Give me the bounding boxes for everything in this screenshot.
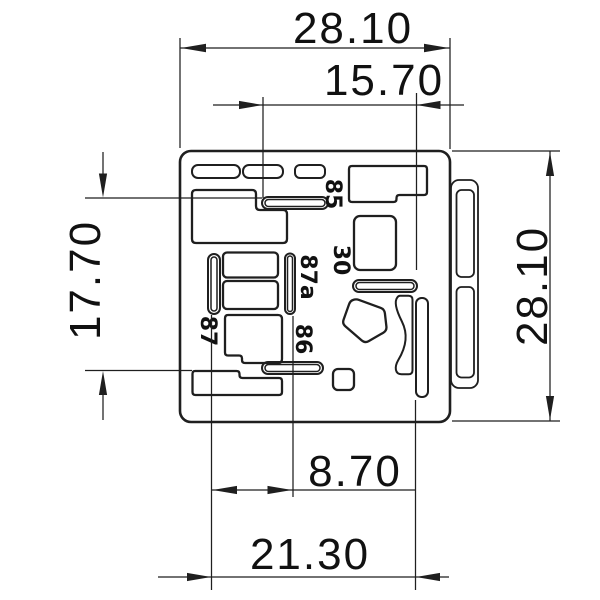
arrowhead-left: [187, 573, 211, 581]
dimension-text: 28.10: [508, 226, 557, 346]
arrowhead-top: [546, 152, 554, 176]
dimension-text: 17.70: [61, 220, 110, 340]
terminal-label-87a: 87a: [295, 254, 320, 299]
rail-slot-right-inner: [288, 256, 293, 312]
terminal-labels: 85 30 87a 87 86: [195, 179, 353, 355]
side-tab-slot-upper: [457, 190, 475, 277]
center-cavity-upper: [223, 253, 278, 278]
dimension-text: 15.70: [324, 56, 444, 105]
dimension-left-height: 17.70: [61, 152, 262, 420]
center-cavity-lower: [223, 281, 278, 309]
dimension-text: 21.30: [250, 530, 370, 579]
arrowhead-right: [416, 573, 440, 581]
side-tab-slot-lower: [457, 287, 475, 378]
top-slot-center: [295, 165, 325, 178]
small-square-cutout: [333, 369, 354, 390]
arrowhead-bottom: [99, 371, 107, 395]
crescent-cutout: [396, 296, 413, 374]
terminal-slot-85-inner: [265, 200, 325, 207]
arrowhead-left: [181, 44, 206, 52]
rail-slot-right-outer: [285, 254, 295, 315]
arrowhead-right: [268, 486, 293, 494]
arrowhead-left: [239, 101, 263, 109]
terminal-label-85: 85: [320, 179, 345, 210]
top-right-cutout: [349, 166, 427, 202]
dimension-lower-width: 21.30: [158, 400, 449, 590]
arrowhead-bottom: [546, 396, 554, 420]
key-cutout: [343, 299, 386, 342]
arrowhead-left: [213, 486, 238, 494]
terminal-cavity-87: [225, 315, 282, 363]
arrowhead-top: [99, 174, 107, 198]
terminal-label-86: 86: [290, 324, 315, 355]
dimension-upper-slot-width: 15.70: [213, 56, 464, 270]
relay-socket-dimension-drawing: 85 30 87a 87 86 28.10 15.70 17.70: [0, 0, 600, 600]
drawing-canvas: 85 30 87a 87 86 28.10 15.70 17.70: [0, 0, 600, 600]
dimension-overall-height: 28.10: [452, 151, 560, 421]
rail-slot-left-inner: [211, 257, 217, 311]
top-slot-left-a: [192, 165, 240, 178]
right-vertical-slot: [416, 298, 428, 397]
rail-slot-left-outer: [208, 254, 220, 314]
dimension-text: 8.70: [308, 447, 402, 496]
terminal-label-87: 87: [195, 316, 220, 347]
terminal-label-30: 30: [328, 245, 353, 276]
terminal-cavity-30: [354, 216, 396, 270]
arrowhead-right: [424, 44, 449, 52]
terminal-slot-30-inner: [356, 283, 414, 290]
dimension-text: 28.10: [293, 4, 413, 53]
